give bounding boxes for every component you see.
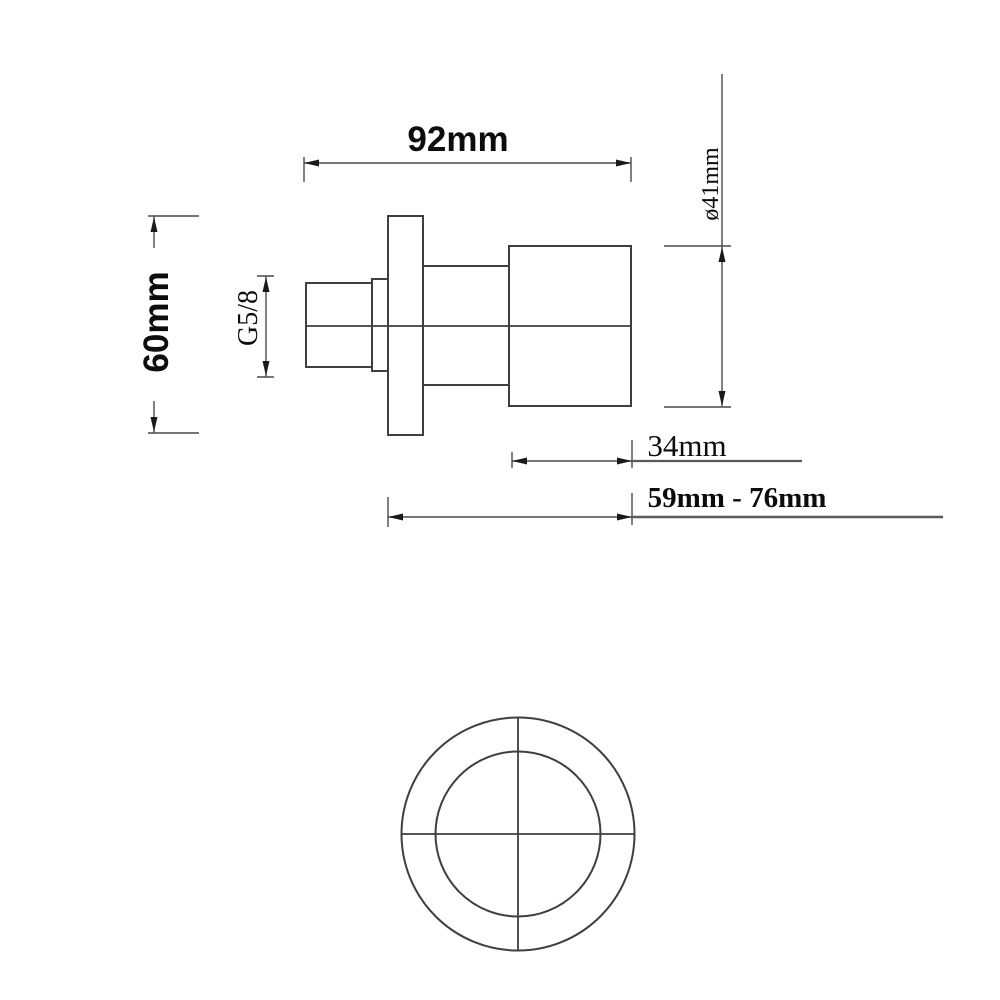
arrow-down-icon xyxy=(263,361,270,376)
arrow-up-icon xyxy=(263,277,270,292)
overall-length-label: 92mm xyxy=(407,120,508,159)
arrow-left-icon xyxy=(388,514,403,521)
side-view xyxy=(306,216,631,435)
flange-height-label: 60mm xyxy=(137,271,176,372)
thread-size-label: G5/8 xyxy=(233,290,264,346)
arrow-right-icon xyxy=(617,458,632,465)
technical-drawing-canvas: 92mm 60mm G5/8 ø41mm xyxy=(0,0,1000,1000)
dimension-handle-length: 34mm xyxy=(512,428,802,468)
dimension-mounting-depth: 59mm - 76mm xyxy=(388,482,943,527)
valve-technical-drawing: 92mm 60mm G5/8 ø41mm xyxy=(0,0,1000,1000)
handle-diameter-label: ø41mm xyxy=(698,147,724,221)
dimension-handle-diameter: ø41mm xyxy=(664,74,731,407)
arrow-down-icon xyxy=(151,417,158,432)
dimension-thread-size: G5/8 xyxy=(233,276,274,377)
arrow-right-icon xyxy=(616,160,631,167)
mounting-depth-label: 59mm - 76mm xyxy=(648,482,827,514)
threaded-inlet-outline xyxy=(306,283,372,367)
arrow-up-icon xyxy=(151,217,158,232)
handle-length-label: 34mm xyxy=(647,428,726,463)
arrow-up-icon xyxy=(719,247,726,262)
arrow-left-icon xyxy=(512,458,527,465)
dimension-flange-height: 60mm xyxy=(137,216,199,433)
front-view xyxy=(401,717,635,951)
arrow-right-icon xyxy=(617,514,632,521)
arrow-down-icon xyxy=(719,391,726,406)
arrow-left-icon xyxy=(304,160,319,167)
dimension-overall-length: 92mm xyxy=(304,120,631,182)
